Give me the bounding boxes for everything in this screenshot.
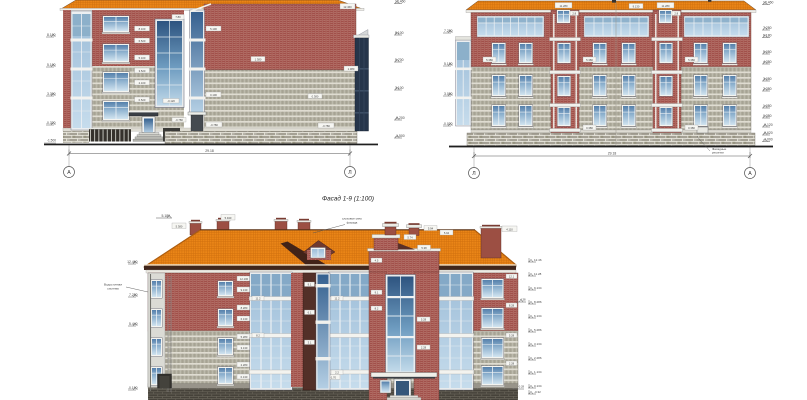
svg-text:5.286: 5.286 (534, 328, 542, 332)
svg-text:-0.020: -0.020 (443, 122, 453, 126)
svg-text:-0.120: -0.120 (167, 99, 175, 103)
svg-text:5.380: 5.380 (486, 58, 493, 62)
svg-text:-1.500: -1.500 (47, 139, 56, 143)
svg-text:3.080: 3.080 (763, 77, 772, 81)
svg-text:5.180: 5.180 (444, 62, 453, 66)
svg-text:12.460: 12.460 (395, 0, 405, 4)
svg-text:5.28: 5.28 (421, 317, 427, 321)
svg-text:11.2: 11.2 (334, 296, 340, 300)
svg-text:7.280: 7.280 (444, 29, 453, 33)
svg-text:-1.500: -1.500 (395, 134, 405, 138)
svg-text:5.940: 5.940 (225, 216, 232, 220)
svg-text:5.080: 5.080 (763, 50, 772, 54)
svg-text:2.280: 2.280 (241, 363, 248, 367)
svg-text:-0.780: -0.780 (175, 118, 183, 122)
svg-text:3.134: 3.134 (534, 342, 542, 346)
svg-text:9.134: 9.134 (534, 286, 542, 290)
svg-text:5.74: 5.74 (407, 235, 413, 239)
svg-text:8.100: 8.100 (47, 33, 56, 37)
svg-text:11.280: 11.280 (661, 4, 670, 8)
svg-text:-0.780: -0.780 (210, 123, 218, 127)
svg-text:0.380: 0.380 (763, 114, 772, 118)
svg-text:8.28: 8.28 (509, 303, 515, 307)
svg-text:5.380: 5.380 (176, 224, 183, 228)
svg-text:12.46: 12.46 (534, 258, 542, 262)
svg-text:-0.32: -0.32 (534, 390, 541, 394)
svg-text:7.280: 7.280 (129, 293, 138, 297)
svg-text:1.134: 1.134 (534, 370, 542, 374)
svg-text:5.700: 5.700 (395, 58, 404, 62)
svg-text:8.100: 8.100 (139, 27, 146, 31)
svg-text:3.300: 3.300 (47, 92, 56, 96)
svg-text:8.100: 8.100 (395, 31, 404, 35)
svg-text:6.180: 6.180 (763, 34, 772, 38)
svg-text:6.1: 6.1 (308, 310, 312, 314)
svg-text:9.130: 9.130 (241, 288, 248, 292)
svg-text:5.38: 5.38 (421, 246, 427, 250)
svg-text:2.8: 2.8 (674, 11, 678, 15)
svg-text:7.280: 7.280 (763, 26, 772, 30)
svg-text:-0.200: -0.200 (395, 116, 405, 120)
svg-text:0.100: 0.100 (210, 93, 217, 97)
svg-text:2.2: 2.2 (335, 370, 339, 374)
svg-text:0.380: 0.380 (586, 126, 593, 130)
svg-text:-0.320: -0.320 (46, 121, 56, 125)
svg-text:29.18: 29.18 (608, 152, 617, 156)
svg-text:12.1: 12.1 (509, 274, 515, 278)
svg-text:3.130: 3.130 (241, 346, 248, 350)
svg-text:5.380: 5.380 (688, 58, 695, 62)
svg-text:5.100: 5.100 (210, 27, 217, 31)
svg-text:решетки: решетки (712, 151, 724, 155)
svg-text:фасада: фасада (347, 220, 358, 224)
svg-text:0.130: 0.130 (241, 375, 248, 379)
svg-text:5.280: 5.280 (241, 335, 248, 339)
svg-text:А: А (748, 171, 752, 177)
svg-text:2.100: 2.100 (139, 81, 146, 85)
svg-text:5.100: 5.100 (139, 56, 146, 60)
svg-text:5.28: 5.28 (509, 333, 515, 337)
svg-text:5.100: 5.100 (47, 63, 56, 67)
svg-text:Фасад 1-9 (1:100): Фасад 1-9 (1:100) (322, 195, 374, 203)
svg-text:8.2: 8.2 (375, 306, 379, 310)
svg-text:3.1: 3.1 (308, 340, 312, 344)
svg-text:6.520: 6.520 (139, 39, 146, 43)
svg-text:9.130: 9.130 (633, 4, 640, 8)
svg-text:0.380: 0.380 (688, 126, 695, 130)
svg-text:-0.190: -0.190 (128, 386, 138, 390)
svg-text:9.1: 9.1 (308, 282, 312, 286)
svg-text:4.380: 4.380 (763, 60, 772, 64)
svg-text:-0.620: -0.620 (763, 131, 773, 135)
svg-text:6.130: 6.130 (241, 317, 248, 321)
svg-text:5.440: 5.440 (129, 322, 138, 326)
svg-text:1.380: 1.380 (348, 67, 355, 71)
svg-text:Л: Л (348, 170, 351, 176)
svg-text:4.110: 4.110 (506, 227, 513, 231)
svg-text:-0.120: -0.120 (763, 123, 773, 127)
svg-text:1.380: 1.380 (255, 57, 262, 61)
svg-text:4.5: 4.5 (375, 258, 379, 262)
svg-text:-0.28: -0.28 (518, 385, 525, 389)
svg-text:12.460: 12.460 (763, 1, 773, 5)
svg-text:А: А (67, 170, 71, 176)
svg-text:6.134: 6.134 (534, 314, 542, 318)
svg-text:12.100: 12.100 (240, 277, 249, 281)
svg-text:9.1: 9.1 (375, 290, 379, 294)
svg-text:8.2: 8.2 (256, 333, 260, 337)
svg-text:2.28: 2.28 (421, 345, 427, 349)
svg-text:12.460: 12.460 (127, 260, 137, 264)
svg-text:5.94: 5.94 (428, 226, 434, 230)
svg-text:0.380: 0.380 (312, 94, 319, 98)
svg-text:3.520: 3.520 (139, 69, 146, 73)
svg-text:8.280: 8.280 (241, 306, 248, 310)
svg-text:2.28: 2.28 (509, 361, 515, 365)
svg-text:0.520: 0.520 (139, 98, 146, 102)
svg-text:5.380: 5.380 (586, 58, 593, 62)
svg-text:4.38: 4.38 (520, 298, 526, 302)
svg-text:11.2: 11.2 (255, 296, 261, 300)
svg-text:-1.70: -1.70 (330, 375, 337, 379)
svg-text:система: система (107, 286, 119, 290)
svg-text:12.460: 12.460 (343, 5, 352, 9)
svg-text:8.286: 8.286 (534, 300, 542, 304)
svg-text:11.280: 11.280 (559, 4, 568, 8)
svg-text:-0.780: -0.780 (322, 124, 330, 128)
svg-text:7.80: 7.80 (175, 15, 181, 19)
svg-text:5.94: 5.94 (444, 231, 450, 235)
svg-text:1.080: 1.080 (763, 104, 772, 108)
svg-text:29.18: 29.18 (205, 149, 214, 153)
svg-text:11.28: 11.28 (534, 272, 542, 276)
svg-text:2.380: 2.380 (763, 87, 772, 91)
svg-text:Л: Л (472, 171, 475, 177)
svg-text:2.8: 2.8 (572, 11, 576, 15)
svg-text:0.134: 0.134 (534, 384, 542, 388)
svg-text:-1.000: -1.000 (763, 138, 773, 142)
svg-text:3.080: 3.080 (444, 92, 453, 96)
svg-text:3.100: 3.100 (395, 86, 404, 90)
svg-text:2.286: 2.286 (534, 356, 542, 360)
